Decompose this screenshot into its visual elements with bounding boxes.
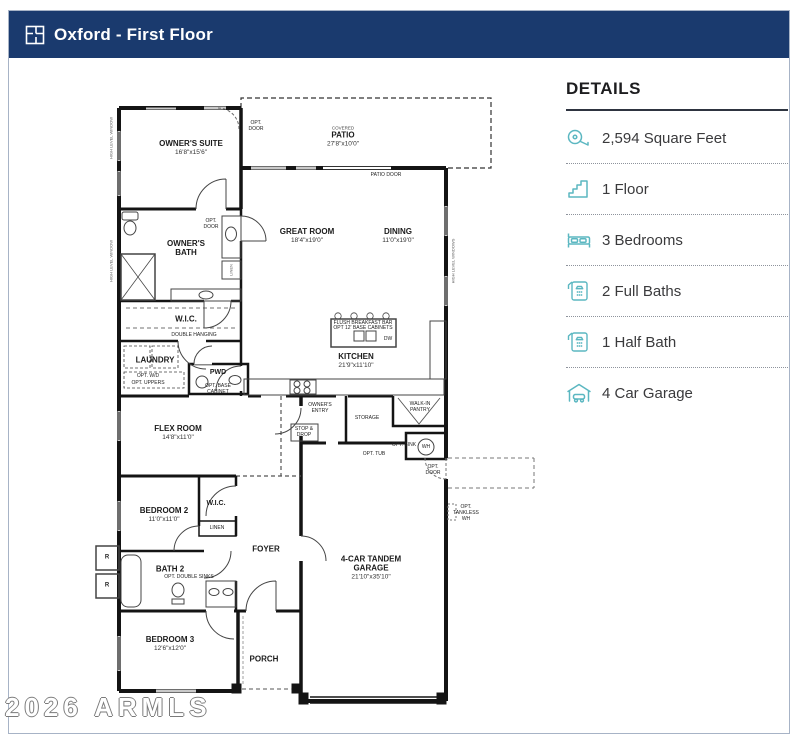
half-baths-label: 1 Half Bath (602, 334, 676, 351)
details-heading: DETAILS (566, 79, 788, 99)
room-owners-suite: OWNER'S SUITE 16'8"x15'6" (159, 139, 223, 157)
opt-uppers-label: OPT. UPPERS (131, 380, 164, 386)
square-feet-label: 2,594 Square Feet (602, 130, 726, 147)
double-hanging-label: DOUBLE HANGING (171, 332, 216, 338)
storage-label: STORAGE (355, 415, 379, 421)
opt-base-cabinet-label: OPT. BASE CABINET (204, 383, 232, 395)
r-box-label-1: R (105, 554, 109, 561)
window-label-2: HIGH LEVEL WINDOW (110, 240, 115, 282)
shower-icon (566, 280, 592, 302)
opt-sink-label: OPT. SINK (392, 442, 416, 448)
owners-entry-label: OWNER'S ENTRY (306, 402, 334, 414)
room-bedroom-2: BEDROOM 2 11'0"x11'0" (140, 506, 188, 524)
room-patio: COVERED PATIO 27'8"x10'0" (327, 126, 359, 149)
opt-wd-label: OPT. W/D (137, 373, 159, 379)
tape-measure-icon (566, 127, 592, 149)
detail-full-baths: 2 Full Baths (566, 266, 788, 317)
page-title: Oxford - First Floor (54, 25, 213, 45)
opt-tankless-wh-label: OPT. TANKLESS WH (453, 504, 479, 522)
floorplan: OWNER'S SUITE 16'8"x15'6" COVERED PATIO … (86, 76, 546, 726)
room-owners-bath: OWNER'S BATH (163, 239, 209, 257)
opt-door-label-2: OPT. DOOR (202, 218, 220, 230)
full-baths-label: 2 Full Baths (602, 283, 681, 300)
room-pwd: PWD (210, 369, 226, 377)
room-bath-2: BATH 2 (156, 564, 184, 573)
detail-square-feet: 2,594 Square Feet (566, 113, 788, 164)
floorplan-drawing (86, 76, 546, 726)
linen-label: LINEN (210, 525, 225, 531)
stairs-icon (566, 178, 592, 200)
room-wic: W.I.C. (175, 314, 197, 323)
room-bedroom-3: BEDROOM 3 12'6"x12'0" (146, 635, 194, 653)
window-label-3: HIGH LEVEL WINDOWS (452, 239, 457, 284)
floorplan-card: Oxford - First Floor DETAILS 2,594 Squar… (8, 10, 790, 734)
detail-bedrooms: 3 Bedrooms (566, 215, 788, 266)
opt-door-label-1: OPT. DOOR (247, 120, 265, 132)
shower-icon (566, 331, 592, 353)
detail-floors: 1 Floor (566, 164, 788, 215)
room-foyer: FOYER (252, 544, 280, 553)
base-cabinets-label: OPT 12' BASE CABINETS (333, 325, 392, 331)
bed-icon (566, 229, 592, 251)
bedrooms-label: 3 Bedrooms (602, 232, 683, 249)
room-dining: DINING 11'0"x19'0" (382, 227, 414, 245)
opt-double-sinks-label: OPT. DOUBLE SINKS (164, 574, 213, 580)
room-porch: PORCH (250, 654, 279, 663)
window-label-1: HIGH LEVEL WINDOW (110, 117, 115, 159)
floors-label: 1 Floor (602, 181, 649, 198)
opt-door-label-3: OPT. DOOR (424, 464, 442, 476)
detail-garage: 4 Car Garage (566, 368, 788, 418)
garage-label: 4 Car Garage (602, 385, 693, 402)
detail-half-baths: 1 Half Bath (566, 317, 788, 368)
details-divider (566, 109, 788, 111)
garage-icon (566, 382, 592, 404)
room-laundry: LAUNDRY (136, 355, 175, 364)
room-garage: 4-CAR TANDEM GARAGE 21'10"x35'10" (331, 555, 411, 582)
header-bar: Oxford - First Floor (9, 11, 789, 58)
room-wic-2: W.I.C. (206, 500, 225, 508)
room-flex: FLEX ROOM 14'8"x11'0" (154, 424, 202, 442)
armls-watermark: 2026 ARMLS (5, 692, 212, 723)
room-great-room: GREAT ROOM 18'4"x19'0" (280, 227, 335, 245)
floorplan-icon (25, 25, 45, 45)
water-heater-label: WH (422, 444, 430, 450)
room-kitchen: KITCHEN 21'9"x11'10" (338, 352, 374, 370)
details-panel: DETAILS 2,594 Square Feet 1 Floor (566, 79, 788, 418)
opt-tub-label: OPT. TUB (363, 451, 385, 457)
walk-in-pantry-label: WALK-IN PANTRY (404, 401, 436, 413)
stop-and-drop-label: STOP & DROP (292, 426, 316, 438)
dishwasher-label: DW (384, 336, 392, 342)
patio-door-label: PATIO DOOR (371, 172, 402, 178)
linen-label-2: LINEN (230, 264, 235, 276)
r-box-label-2: R (105, 582, 109, 589)
